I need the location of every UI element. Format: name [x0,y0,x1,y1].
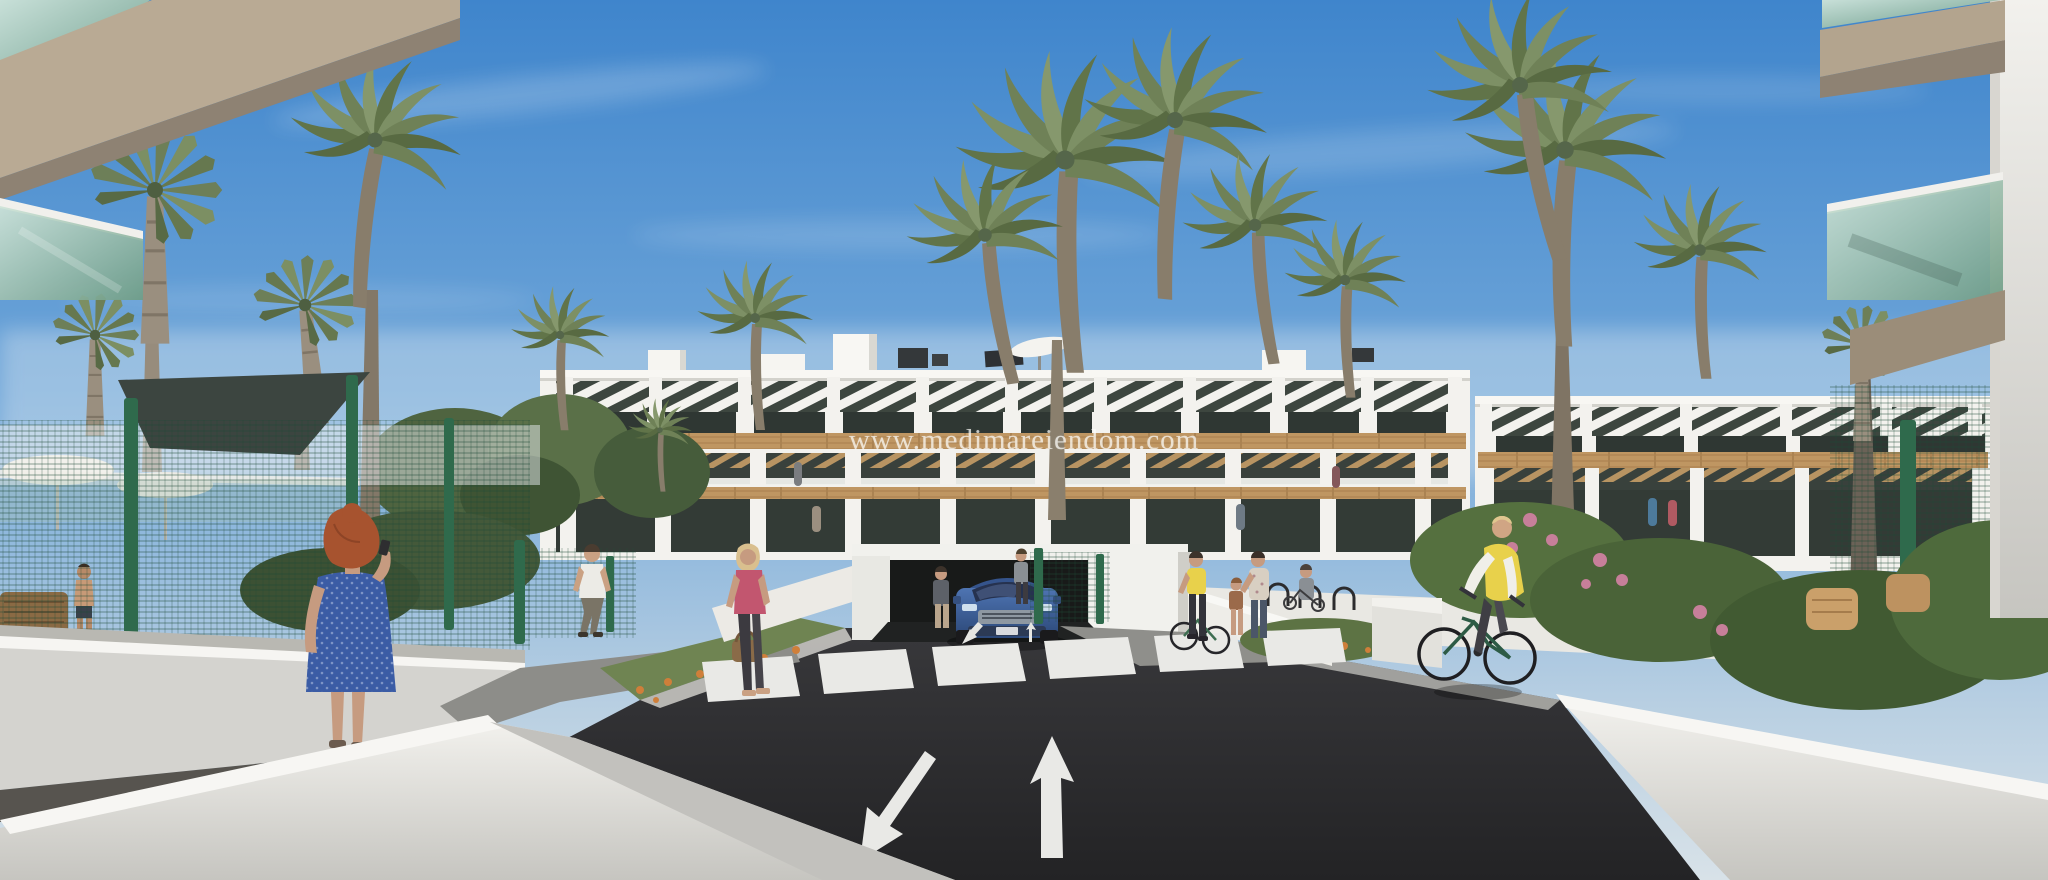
fence-post [124,398,138,650]
architectural-render: www.medimareiendom.com [0,0,2048,880]
crosswalk-stripe [932,643,1026,686]
render-canvas [0,0,2048,880]
crosswalk-stripe [1044,637,1136,679]
pedestrian-woman-gray [1014,549,1028,605]
upper-window-row [556,412,1462,433]
mesh-fence-mid-right [1030,548,1110,624]
roof-vent [898,348,928,368]
mesh-fence-mid-left [508,540,636,644]
pedestrian-woman-garage [933,566,949,628]
crosswalk-stripe [1262,628,1346,666]
pedestrian-child [1229,578,1243,636]
fence-post [444,418,454,630]
crosswalk-stripe [818,649,914,694]
